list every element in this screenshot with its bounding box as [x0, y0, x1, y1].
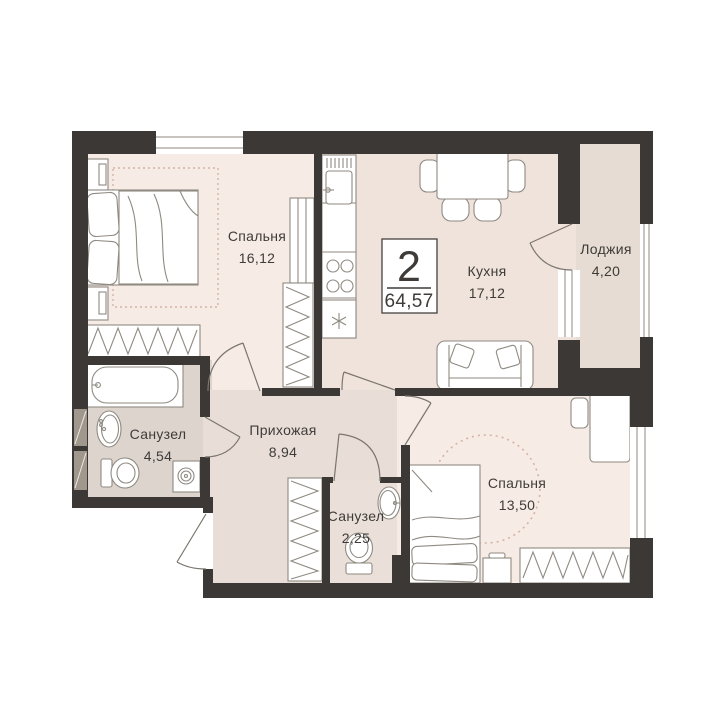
pillow-icon [412, 563, 478, 582]
bed-icon [85, 190, 198, 285]
window-kitchen-loggia [558, 270, 580, 337]
floor-plan-canvas: Спальня 16,12 Кухня 17,12 Лоджия 4,20 Са… [0, 0, 726, 726]
chair-icon [506, 160, 525, 192]
fridge-icon [322, 300, 356, 338]
room-name: Прихожая [249, 422, 316, 438]
sink-icon [97, 411, 121, 447]
window-loggia [640, 224, 653, 337]
window-bedroom-2 [630, 427, 653, 538]
room-area: 2,25 [342, 530, 370, 546]
chair-icon [442, 197, 469, 221]
closet-icon [290, 198, 314, 283]
entrance-opening [203, 513, 213, 569]
wardrobe-icon [520, 548, 630, 583]
room-name: Спальня [228, 228, 286, 244]
room-name: Спальня [488, 475, 546, 491]
toilet-icon [101, 458, 139, 488]
bed-icon [409, 465, 480, 583]
sofa-icon [437, 341, 533, 390]
pillow-icon [412, 543, 478, 565]
nightstand-icon [483, 553, 511, 583]
badge-total-area: 64,57 [384, 291, 433, 312]
room-name: Санузел [328, 508, 385, 524]
window-bedroom-1 [156, 131, 243, 154]
room-area: 8,94 [269, 444, 297, 460]
door-entrance [177, 514, 206, 569]
wardrobe-icon [283, 283, 313, 387]
area-badge: 2 64,57 [382, 239, 437, 313]
room-area: 13,50 [499, 497, 536, 513]
bathtub-icon [87, 363, 183, 407]
chair-icon [420, 160, 439, 192]
room-area: 4,54 [144, 448, 172, 464]
room-name: Санузел [130, 426, 187, 442]
wardrobe-icon [288, 478, 322, 581]
floor-plan: Спальня 16,12 Кухня 17,12 Лоджия 4,20 Са… [0, 0, 726, 726]
washing-machine-icon [173, 461, 200, 492]
badge-rooms-count: 2 [397, 243, 421, 291]
room-area: 16,12 [239, 250, 276, 266]
chair-icon [474, 197, 501, 221]
chair-icon [571, 398, 588, 428]
room-name: Кухня [468, 263, 507, 279]
wardrobe-icon [85, 325, 200, 358]
room-area: 4,20 [592, 263, 620, 279]
room-name: Лоджия [580, 241, 631, 257]
room-area: 17,12 [469, 285, 506, 301]
